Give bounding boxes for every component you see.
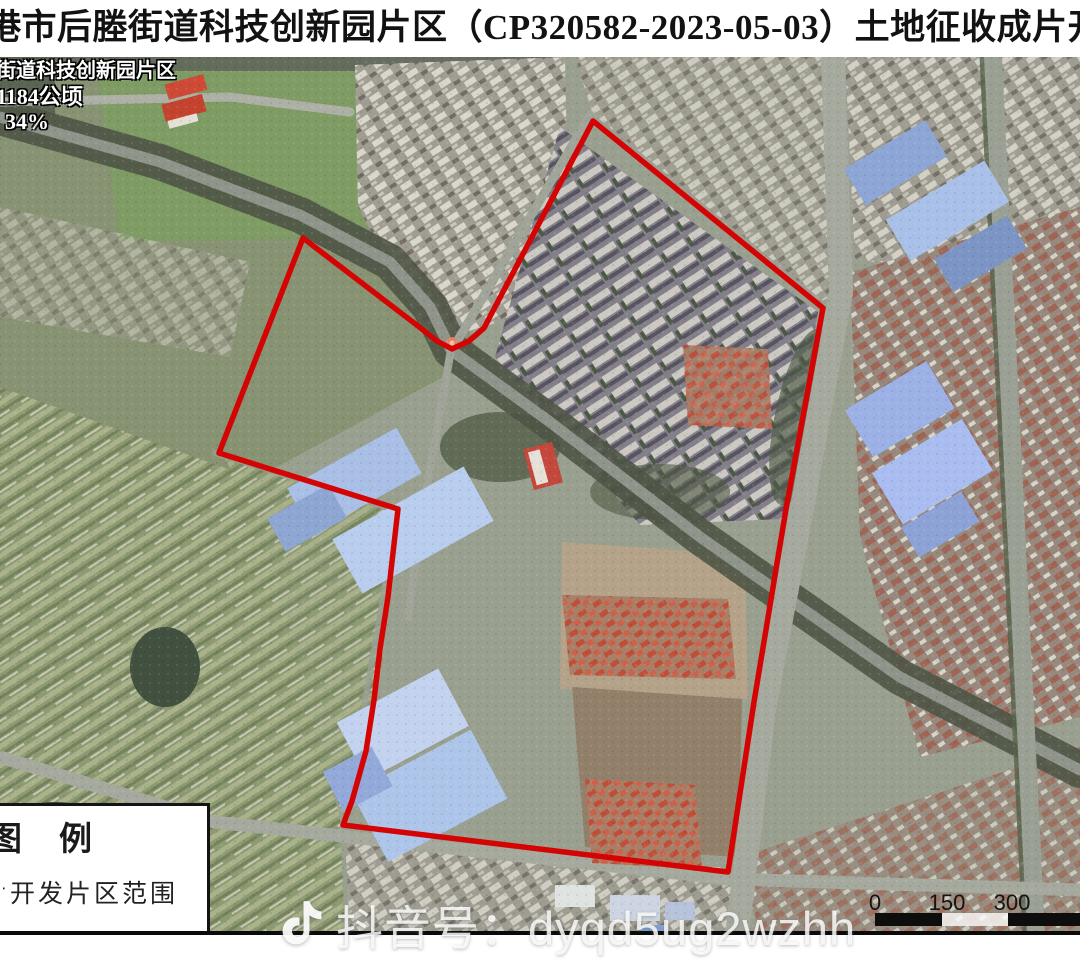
title-band: 港市后塍街道科技创新园片区（CP320582-2023-05-03）土地征收成片… [0, 0, 1080, 57]
douyin-handle: 抖音号：dyqd5ug2wzhh [336, 890, 856, 959]
legend-item-label: 开发片区范围 [10, 881, 178, 908]
legend-box: 图 例 片开发片区范围 [0, 803, 210, 935]
annotation-area-size: 1184公顷 [0, 84, 176, 109]
page-title: 港市后塍街道科技创新园片区（CP320582-2023-05-03）土地征收成片… [0, 0, 1080, 56]
annotation-percentage: 34% [0, 109, 176, 134]
annotation-area-name: 街道科技创新园片区 [0, 59, 176, 84]
legend-item-development-area: 片开发片区范围 [3, 874, 207, 910]
scale-bar-segments [875, 913, 1080, 926]
satellite-map: 街道科技创新园片区 1184公顷 34% 图 例 片开发片区范围 0 150 3… [0, 57, 1080, 935]
video-frame: 港市后塍街道科技创新园片区（CP320582-2023-05-03）土地征收成片… [0, 0, 1080, 970]
tiktok-note-icon [282, 899, 326, 949]
douyin-watermark: 抖音号：dyqd5ug2wzhh [282, 893, 856, 955]
legend-title: 图 例 [0, 812, 207, 860]
legend-item-cut-char: 片 [3, 874, 10, 910]
map-annotation: 街道科技创新园片区 1184公顷 34% [0, 59, 176, 134]
